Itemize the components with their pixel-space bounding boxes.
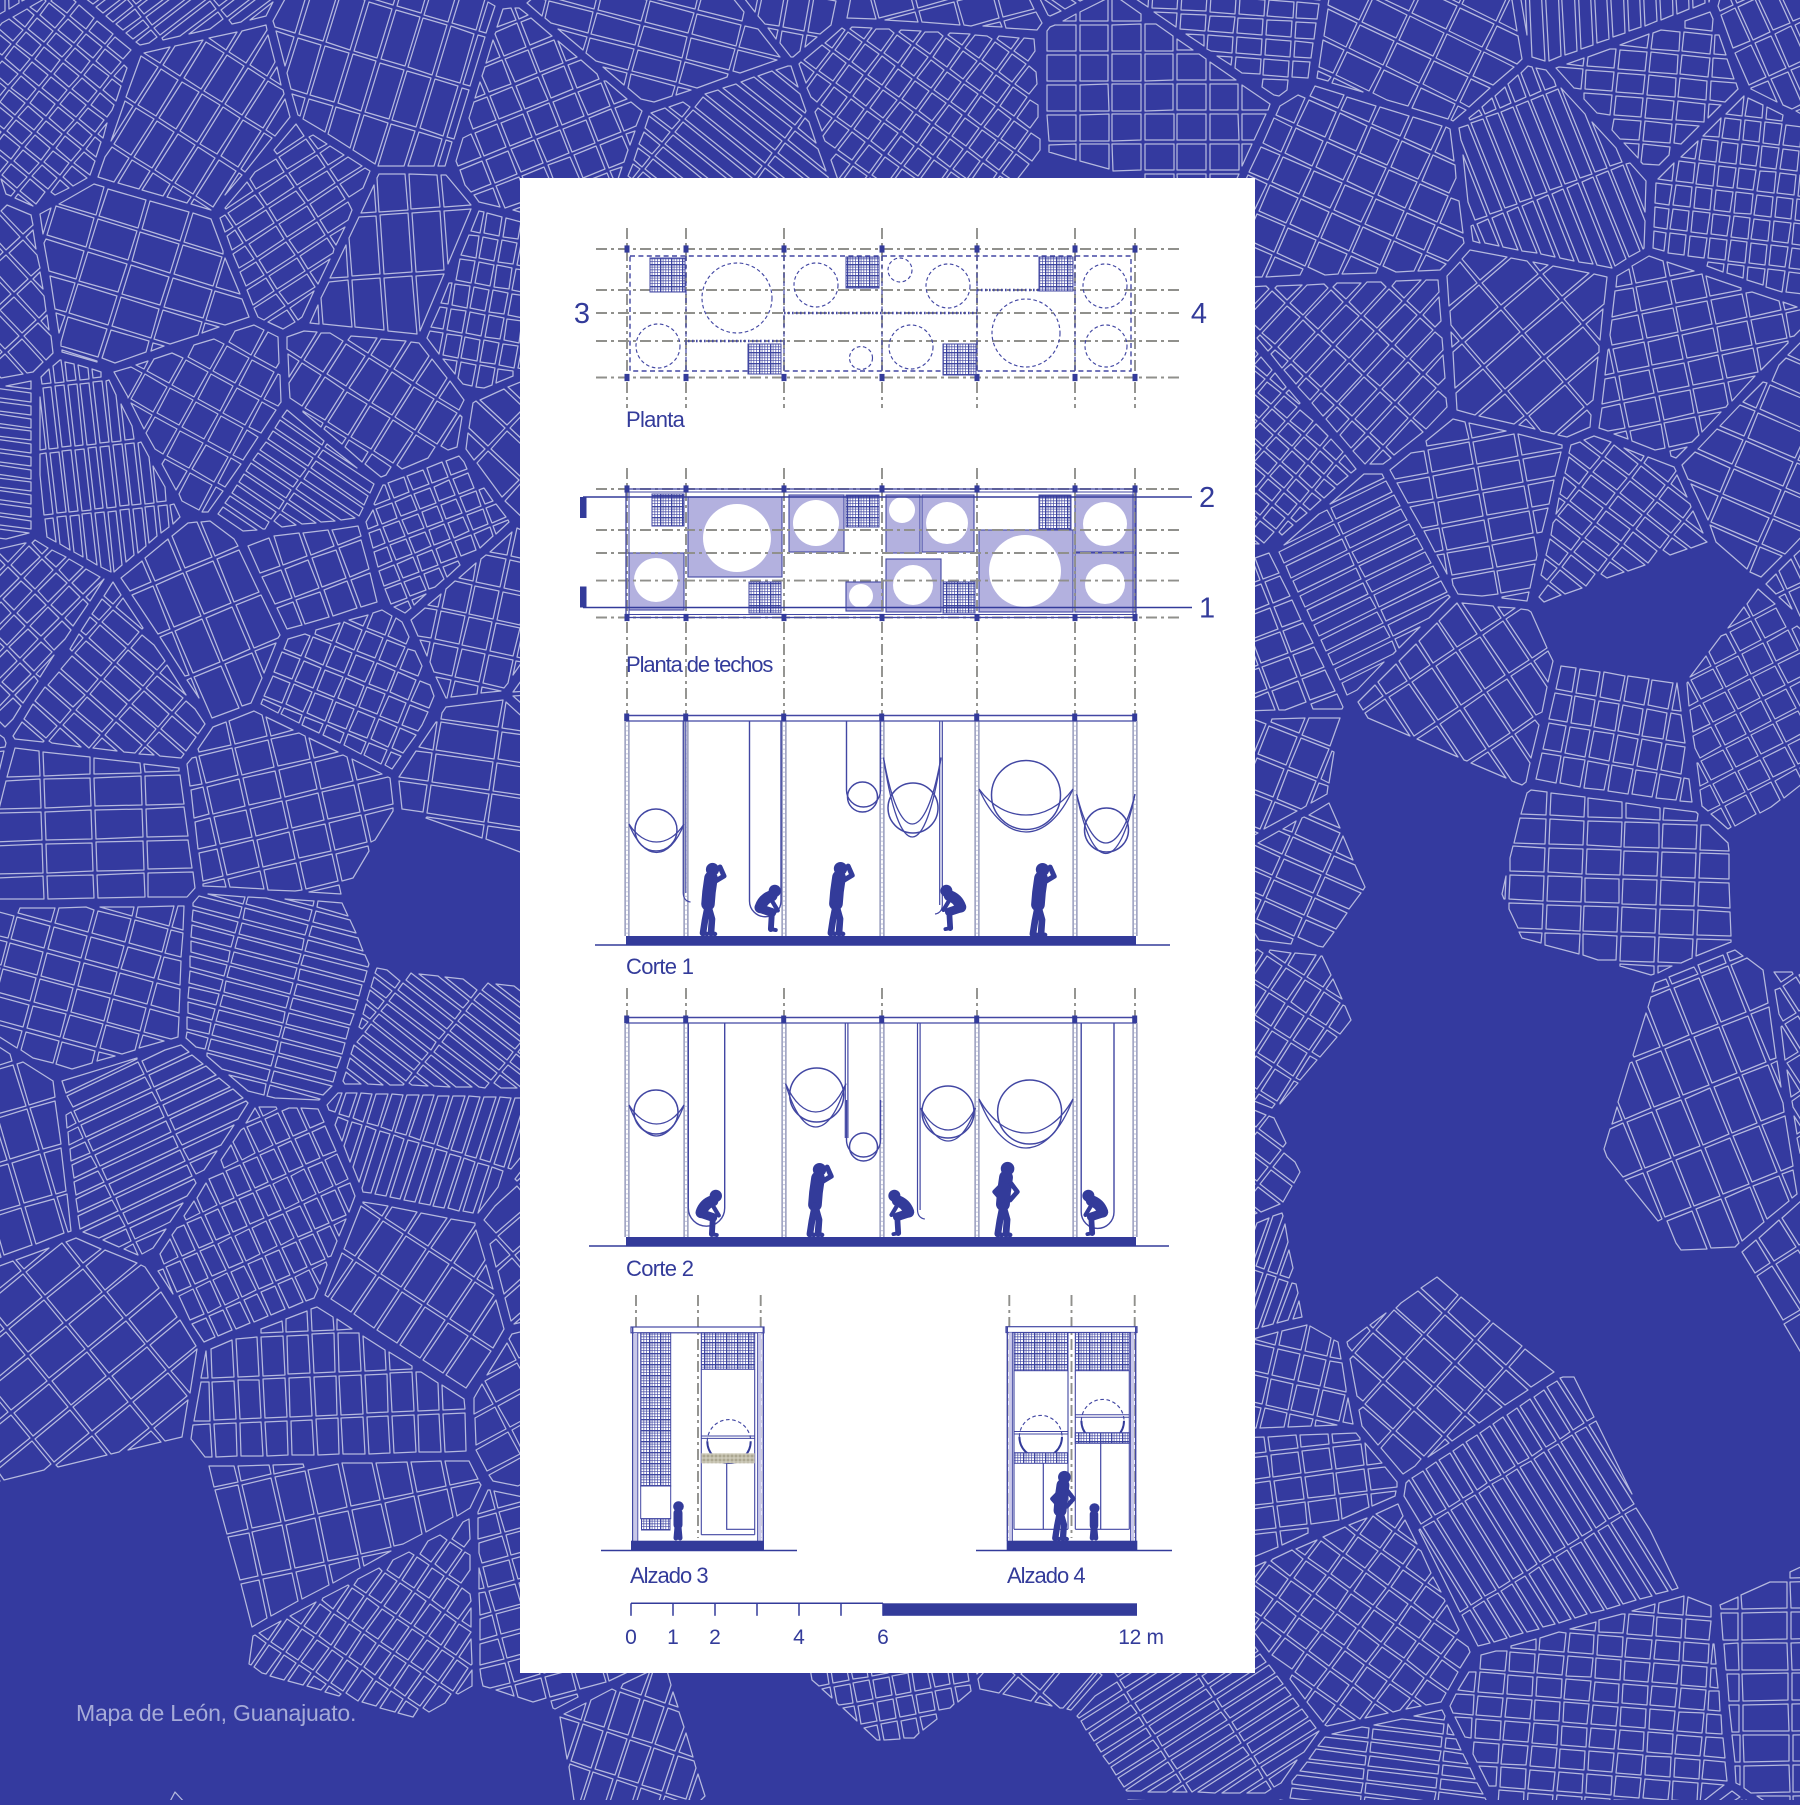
svg-text:Planta: Planta: [626, 407, 686, 432]
svg-text:1: 1: [667, 1626, 679, 1649]
svg-text:Alzado 3: Alzado 3: [630, 1563, 708, 1588]
svg-text:2: 2: [1199, 482, 1215, 514]
svg-text:1: 1: [1199, 593, 1215, 625]
svg-text:Planta de techos: Planta de techos: [626, 652, 773, 677]
svg-text:Alzado 4: Alzado 4: [1007, 1563, 1085, 1588]
svg-text:Corte 2: Corte 2: [626, 1256, 694, 1281]
svg-text:0: 0: [625, 1626, 637, 1649]
svg-text:12 m: 12 m: [1118, 1626, 1164, 1649]
svg-text:2: 2: [709, 1626, 721, 1649]
svg-text:Mapa de León, Guanajuato.: Mapa de León, Guanajuato.: [76, 1700, 356, 1726]
svg-text:3: 3: [574, 298, 590, 330]
svg-text:4: 4: [1191, 298, 1207, 330]
svg-text:4: 4: [793, 1626, 805, 1649]
svg-text:Corte 1: Corte 1: [626, 954, 694, 979]
svg-text:6: 6: [877, 1626, 889, 1649]
